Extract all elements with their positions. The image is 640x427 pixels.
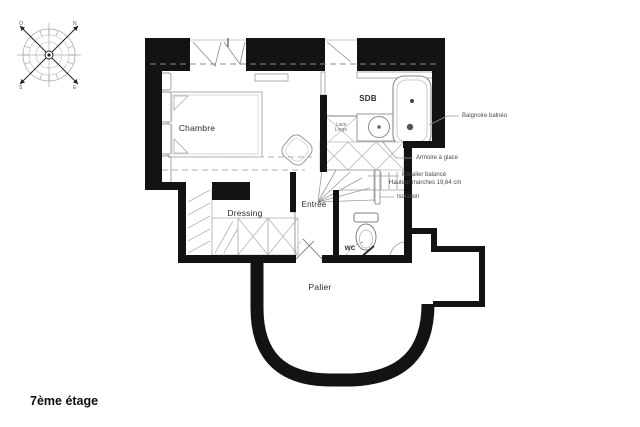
room-label-wc: WC: [345, 245, 356, 252]
shelf-chambre: [255, 74, 288, 81]
wall-entree-left: [290, 172, 296, 212]
wall-dressing-bottom: [178, 255, 296, 263]
floor-plan-page: N S E O: [0, 0, 640, 427]
room-label-dressing: Dressing: [227, 208, 262, 218]
wall-bump-step1: [431, 228, 437, 252]
room-label-palier: Palier: [309, 282, 332, 292]
wall-right-sdb: [432, 38, 445, 148]
annotation-baignoire: Baignoire balnéo: [462, 113, 507, 119]
wall-left: [145, 38, 162, 190]
hatched-storage-strip: [320, 142, 404, 170]
window-casement-right: [224, 42, 245, 64]
annotation-escalier: Escalier balancé: [402, 172, 446, 178]
wall-top-middle: [246, 38, 325, 71]
wall-bump-bottom: [433, 301, 485, 307]
floor-plan-drawing: [0, 0, 640, 427]
bathtub: [393, 76, 431, 146]
wall-stairwell-right: [404, 148, 412, 260]
window-casement-left: [193, 42, 221, 66]
wall-dressing-left: [178, 182, 186, 263]
annotation-armoire: Armoire à glace: [416, 155, 458, 161]
wall-top-right: [357, 38, 445, 71]
wall-bump-step2: [437, 246, 485, 252]
washing-machine-label-line2: Linge: [335, 128, 347, 133]
room-label-sdb: SDB: [359, 94, 377, 103]
window-casement-sdb: [327, 42, 351, 62]
wall-bump-right: [479, 252, 485, 307]
palier-door-leaf-left: [296, 241, 314, 259]
room-label-chambre: Chambre: [179, 123, 215, 133]
wall-chambre-sdb: [320, 95, 327, 172]
glass-partition: [321, 72, 325, 95]
armchair: [279, 132, 316, 169]
wall-wc-bottom: [322, 255, 412, 263]
wall-wc-left: [333, 190, 339, 255]
annotation-hauteur-marches: Hauteur marches 19,64 cm: [389, 180, 461, 186]
room-label-entree: Entrée: [302, 200, 327, 209]
bathroom-fixtures: [321, 72, 431, 146]
washing-machine-label: Lave Linge: [335, 123, 347, 133]
wall-turret: [257, 263, 428, 380]
insulated-partition: [375, 170, 380, 204]
wall-sdb-bottom: [403, 141, 445, 148]
toilet: [354, 213, 378, 250]
chimney-block: [212, 182, 250, 200]
annotation-isolation: Isolation: [397, 194, 419, 200]
floor-title: 7ème étage: [30, 394, 98, 408]
